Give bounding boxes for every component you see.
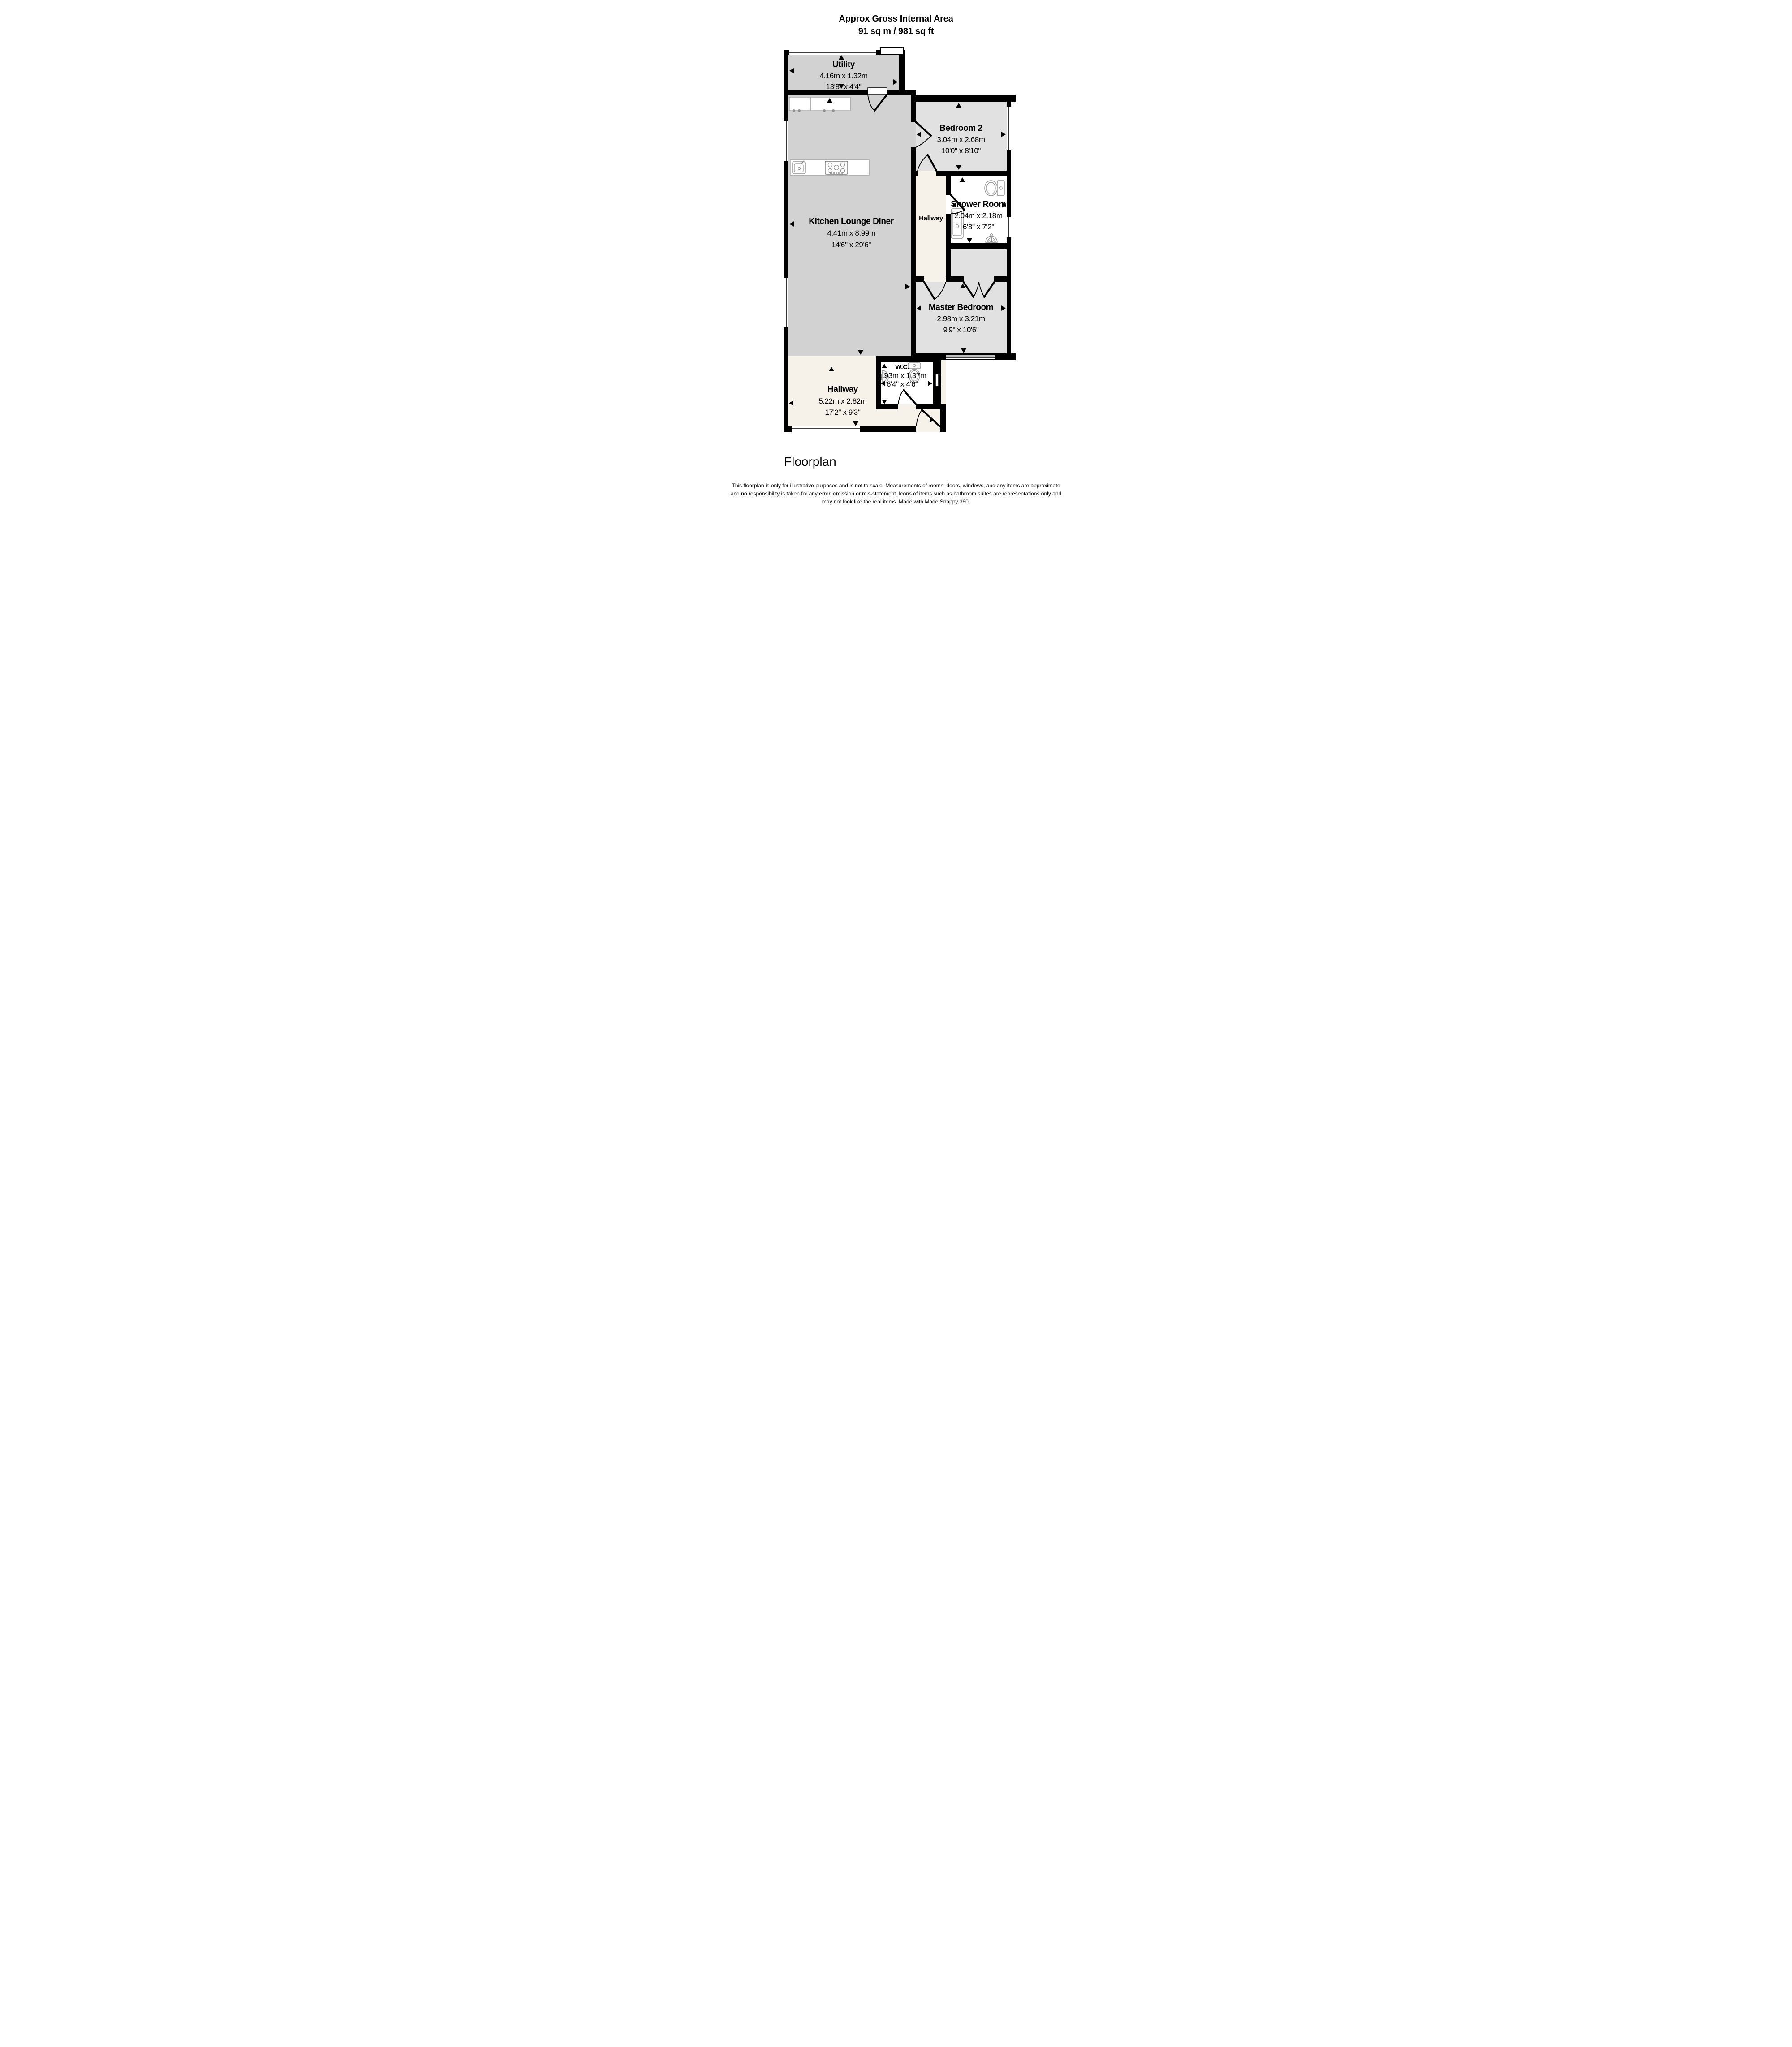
page-title: Approx Gross Internal Area <box>839 14 953 24</box>
room-dim-hallway-imperial: 17'2" x 9'3" <box>825 408 861 417</box>
wall-segment <box>899 50 905 95</box>
cabinet-handle-icon <box>823 109 826 112</box>
door-gap <box>924 276 946 282</box>
window <box>784 278 788 327</box>
utility-external-door-recess <box>881 47 903 55</box>
wall-segment <box>916 404 941 409</box>
door-gap <box>911 122 916 147</box>
room-dim-kitchen-metric: 4.41m x 8.99m <box>827 229 875 237</box>
door-gap <box>898 404 916 409</box>
wall-segment <box>936 171 1007 176</box>
wall-segment <box>911 95 1016 102</box>
wall-cabinet-icon <box>811 97 850 111</box>
room-label-utility: Utility <box>832 60 855 69</box>
room-dim-shower-room-metric: 2.04m x 2.18m <box>954 211 1002 220</box>
room-label-kitchen: Kitchen Lounge Diner <box>809 217 894 226</box>
room-dim-master-bedroom-metric: 2.98m x 3.21m <box>937 314 985 323</box>
page-area: 91 sq m / 981 sq ft <box>858 26 934 36</box>
room-label-master-bedroom: Master Bedroom <box>929 303 993 312</box>
door-threshold <box>868 88 887 95</box>
toilet-icon <box>985 181 1004 196</box>
disclaimer-line-2: and no responsibility is taken for any e… <box>731 490 1061 497</box>
room-dim-wc-imperial: 6'4" x 4'6" <box>887 380 918 388</box>
wall-segment <box>946 276 964 282</box>
sink-icon <box>793 161 805 174</box>
room-label-hallway-small: Hallway <box>919 215 943 222</box>
wall-segment <box>946 243 1011 249</box>
window <box>946 355 995 359</box>
room-label-wc: W.C. <box>895 363 909 371</box>
wall-segment <box>994 276 1011 282</box>
wall-segment <box>887 90 916 95</box>
wall-segment <box>784 50 788 95</box>
room-label-bedroom-2: Bedroom 2 <box>939 124 982 133</box>
room-dim-utility-metric: 4.16m x 1.32m <box>819 72 867 80</box>
door-gap <box>964 276 994 282</box>
wall-segment <box>911 97 916 122</box>
disclaimer-line-1: This floorplan is only for illustrative … <box>732 482 1060 489</box>
window <box>792 426 860 432</box>
room-dim-kitchen-imperial: 14'6" x 29'6" <box>831 241 871 249</box>
room-label-shower-room: Shower Room <box>951 200 1006 209</box>
room-dim-shower-room-imperial: 6'8" x 7'2" <box>963 223 994 231</box>
wall-segment <box>911 276 924 282</box>
cabinet-handle-icon <box>793 109 795 112</box>
wall-cabinet-icon <box>789 97 810 111</box>
cabinet-handle-icon <box>798 109 801 112</box>
wall-segment <box>940 404 946 432</box>
wall-segment <box>911 147 916 353</box>
wall-segment <box>876 404 898 409</box>
wall-segment <box>876 356 881 409</box>
floorplan-page: Approx Gross Internal Area 91 sq m / 981… <box>672 0 1120 512</box>
window <box>784 121 788 161</box>
disclaimer-line-3: may not look like the real items. Made w… <box>822 499 970 505</box>
floorplan-caption: Floorplan <box>784 455 836 469</box>
door-gap <box>916 426 940 432</box>
window <box>1007 217 1011 237</box>
wall-segment <box>946 176 951 195</box>
window <box>1007 107 1011 150</box>
door-gap <box>946 195 951 214</box>
room-dim-bedroom-2-metric: 3.04m x 2.68m <box>937 135 985 144</box>
wall-segment <box>876 356 941 362</box>
room-dim-utility-imperial: 13'8" x 4'4" <box>826 82 862 91</box>
wall-segment <box>911 171 918 176</box>
room-label-hallway: Hallway <box>827 385 858 394</box>
room-dim-wc-metric: 1.93m x 1.37m <box>878 371 926 380</box>
cabinet-handle-icon <box>832 109 835 112</box>
room-dim-bedroom-2-imperial: 10'0" x 8'10" <box>941 146 981 155</box>
floor-hallway-small <box>916 176 946 276</box>
window <box>789 50 876 55</box>
door-gap <box>918 171 936 176</box>
floorplan-canvas: Approx Gross Internal Area 91 sq m / 981… <box>672 0 1120 512</box>
hob-icon <box>825 161 848 174</box>
floor-wardrobe-alcove <box>951 249 1007 276</box>
room-dim-master-bedroom-imperial: 9'9" x 10'6" <box>943 326 979 334</box>
room-dim-hallway-metric: 5.22m x 2.82m <box>818 397 866 405</box>
window <box>935 374 939 386</box>
